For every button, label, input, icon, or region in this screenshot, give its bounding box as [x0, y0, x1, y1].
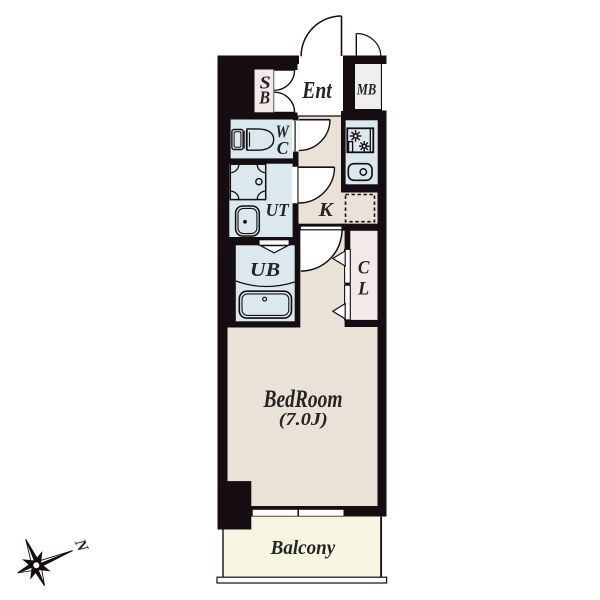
svg-text:UB: UB [250, 259, 280, 281]
svg-text:MB: MB [356, 82, 377, 99]
svg-text:K: K [318, 200, 335, 221]
svg-text:UT: UT [266, 200, 290, 220]
svg-text:(7.0J): (7.0J) [279, 409, 328, 430]
svg-text:Balcony: Balcony [270, 537, 336, 559]
svg-text:C: C [358, 259, 370, 279]
svg-text:B: B [258, 87, 270, 107]
svg-text:L: L [357, 280, 369, 300]
svg-text:Ent: Ent [301, 78, 332, 104]
svg-text:C: C [277, 138, 290, 158]
